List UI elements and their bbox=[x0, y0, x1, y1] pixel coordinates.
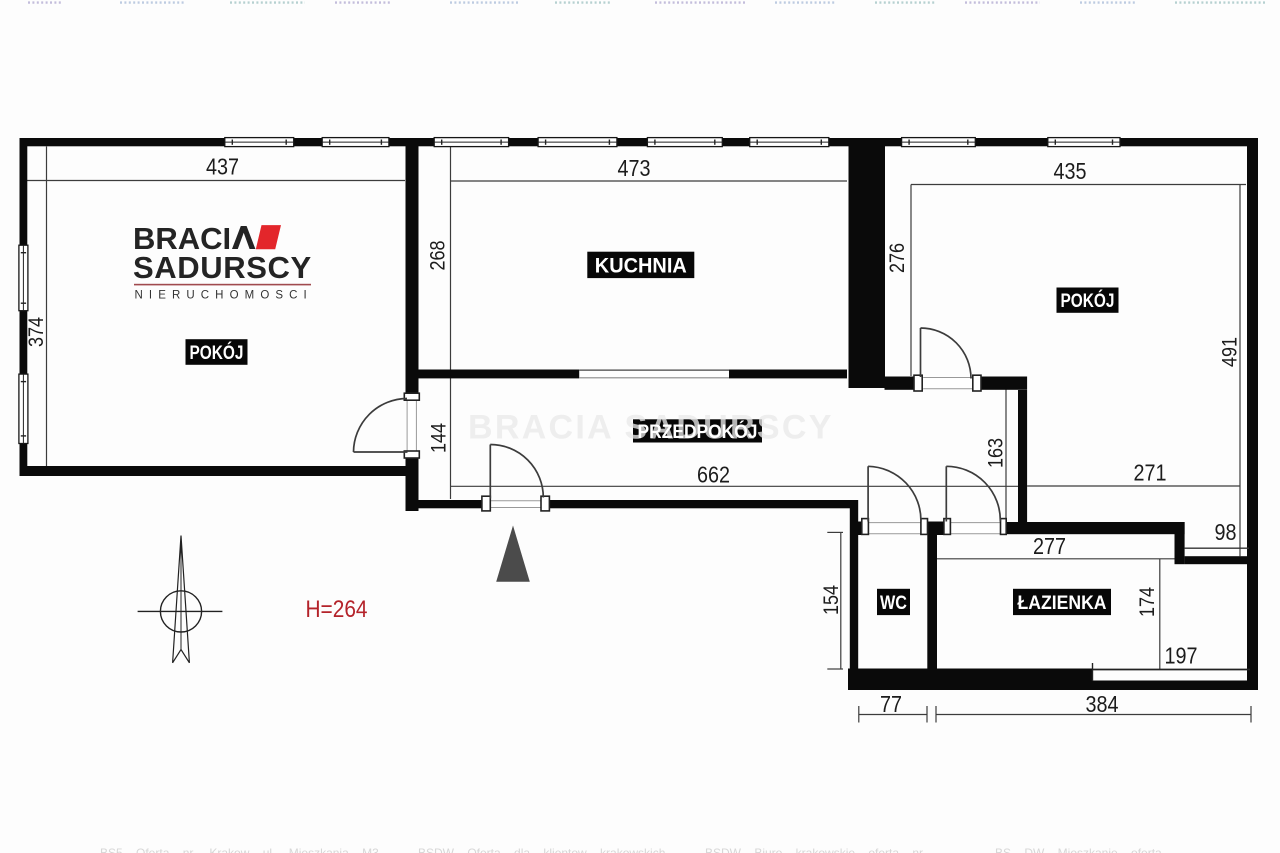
svg-text:98: 98 bbox=[1215, 519, 1237, 545]
svg-text:437: 437 bbox=[206, 154, 239, 180]
svg-text:271: 271 bbox=[1134, 460, 1167, 486]
svg-text:384: 384 bbox=[1086, 691, 1119, 717]
svg-text:77: 77 bbox=[880, 691, 902, 717]
svg-text:491: 491 bbox=[1219, 337, 1242, 367]
svg-text:277: 277 bbox=[1033, 533, 1066, 559]
svg-text:BS5 Oferta nr. Krakow ul. Mies: BS5 Oferta nr. Krakow ul. Mieszkania M3 bbox=[100, 846, 379, 853]
svg-text:BSDW Biuro krakowskie oferta n: BSDW Biuro krakowskie oferta nr bbox=[705, 846, 923, 853]
svg-text:268: 268 bbox=[427, 241, 450, 271]
svg-text:PRZEDPOKÓJ: PRZEDPOKÓJ bbox=[638, 421, 758, 443]
svg-text:374: 374 bbox=[25, 317, 48, 347]
svg-text:473: 473 bbox=[618, 155, 651, 181]
svg-text:154: 154 bbox=[820, 585, 843, 615]
svg-text:KUCHNIA: KUCHNIA bbox=[595, 255, 687, 278]
svg-text:662: 662 bbox=[697, 462, 730, 488]
svg-text:NIERUCHOMOSCI: NIERUCHOMOSCI bbox=[135, 289, 313, 301]
svg-text:ŁAZIENKA: ŁAZIENKA bbox=[1018, 592, 1107, 614]
svg-text:BS DW Mieszkanie oferta: BS DW Mieszkanie oferta bbox=[995, 846, 1162, 853]
svg-text:BSDW Oferta dla klientow krako: BSDW Oferta dla klientow krakowskich bbox=[418, 846, 665, 853]
svg-text:276: 276 bbox=[886, 243, 909, 273]
svg-text:163: 163 bbox=[985, 438, 1008, 468]
svg-text:435: 435 bbox=[1054, 158, 1087, 184]
svg-text:POKÓJ: POKÓJ bbox=[190, 342, 244, 364]
svg-text:197: 197 bbox=[1165, 643, 1198, 669]
svg-text:H=264: H=264 bbox=[306, 596, 368, 623]
svg-text:POKÓJ: POKÓJ bbox=[1061, 290, 1115, 312]
svg-text:SADURSCY: SADURSCY bbox=[133, 250, 312, 285]
svg-text:WC: WC bbox=[880, 592, 907, 614]
svg-text:174: 174 bbox=[1136, 587, 1159, 617]
svg-text:144: 144 bbox=[428, 423, 451, 453]
